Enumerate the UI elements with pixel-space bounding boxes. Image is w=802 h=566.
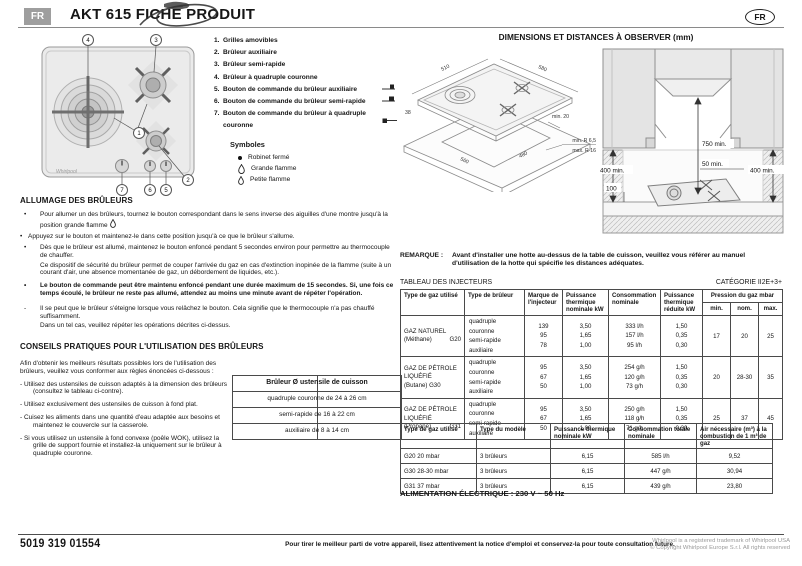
symbol-row: Petite flamme <box>238 175 406 186</box>
copyright-text: Whirlpool is a registered trademark of W… <box>620 538 790 552</box>
header-cell: Consommation nominale <box>609 290 661 316</box>
pressure-nom-cell: 20 <box>731 316 759 357</box>
svg-text:580: 580 <box>537 64 547 73</box>
cutout-dimensions-diagram: 510 580 560 480 38 min. 20 min. R 6,5 ma… <box>402 50 597 192</box>
hood-clearance-diagram: 750 min. 50 min. 400 min. 400 min. 100 <box>598 46 788 236</box>
header-cell: Puissance thermique nominale kW <box>551 424 625 449</box>
data-cell: 23,80 <box>697 479 773 494</box>
paragraph: Dans un tel cas, veuillez répéter les op… <box>40 322 398 330</box>
item-number: 3. <box>214 59 223 71</box>
closed-tap-icon <box>238 156 242 160</box>
list-item: 7.Bouton de commande du brûleur à quadru… <box>214 108 392 132</box>
symbols-title: Symboles <box>230 139 406 151</box>
pressure-max-cell: 35 <box>759 357 783 398</box>
item-number: 4. <box>214 72 223 84</box>
bullet-marker: • <box>20 282 40 297</box>
document-code: 5019 319 01554 <box>20 538 100 550</box>
item-label: Bouton de commande du brûleur semi-rapid… <box>223 96 366 108</box>
tip-item: - Si vous utilisez un ustensile à fond c… <box>20 435 230 458</box>
section-title-dimensions: DIMENSIONS ET DISTANCES À OBSERVER (mm) <box>400 32 792 42</box>
paragraph: Il se peut que le brûleur s'éteigne lors… <box>40 305 398 320</box>
bullet-item: • Dès que le brûleur est allumé, mainten… <box>20 244 398 279</box>
list-item: 2.Brûleur auxiliaire <box>214 47 406 59</box>
power-cell: 3,501,651,00 <box>563 316 609 357</box>
knob-position-icon <box>382 96 397 105</box>
knob-position-icon <box>382 84 397 93</box>
bullet-item: • Appuyez sur le bouton et maintenez-le … <box>20 233 398 241</box>
item-number: 6. <box>214 96 223 108</box>
copyright-line: Whirlpool is a registered trademark of W… <box>620 538 790 545</box>
cabinets-and-hood <box>603 49 783 148</box>
dash-marker: - <box>20 305 40 332</box>
table-row: G30 28-30 mbar 3 brûleurs 6,15 447 g/h 3… <box>401 464 773 479</box>
tips-section: Afin d'obtenir les meilleurs résultats p… <box>20 360 398 458</box>
header-cell: min. <box>703 303 731 316</box>
gas-type-cell: GAZ DE PÉTROLE LIQUÉFIÉ (Butane) G30 <box>401 357 465 398</box>
tip-item: - Utilisez exclusivement des ustensiles … <box>20 401 230 409</box>
reduced-power-cell: 1,500,350,30 <box>661 316 703 357</box>
reduced-power-cell: 1,500,350,30 <box>661 357 703 398</box>
svg-text:400 min.: 400 min. <box>750 168 775 175</box>
item-number: 7. <box>214 108 223 132</box>
data-cell: 585 l/h <box>625 449 697 464</box>
symbol-row: Robinet fermé <box>238 153 406 164</box>
burner-cell: quadruple couronnesemi-rapideauxiliaire <box>465 357 525 398</box>
pan-size-table: Brûleur Ø ustensile de cuisson quadruple… <box>232 375 402 440</box>
svg-text:100: 100 <box>606 186 617 193</box>
list-item: 5.Bouton de commande du brûleur auxiliai… <box>214 84 406 96</box>
left-text-column: ALLUMAGE DES BRÛLEURS • Pour allumer un … <box>20 196 398 463</box>
handwritten-scribble <box>128 0 238 34</box>
table-row: GAZ DE PÉTROLE LIQUÉFIÉ (Butane) G30 qua… <box>401 357 783 398</box>
data-cell: 439 g/h <box>625 479 697 494</box>
header-rule <box>18 27 784 28</box>
language-badge: FR <box>24 8 51 25</box>
list-item: 3.Brûleur semi-rapide <box>214 59 406 71</box>
bullet-item: • Pour allumer un des brûleurs, tournez … <box>20 211 398 229</box>
pressure-min-cell: 20 <box>703 357 731 398</box>
table-row: auxiliaire de 8 à 14 cm <box>233 424 401 439</box>
header-cell: Marque de l'injecteur <box>525 290 563 316</box>
bullet-text: Il se peut que le brûleur s'éteigne lors… <box>40 305 398 332</box>
svg-text:max. R 16: max. R 16 <box>572 148 596 154</box>
item-label: Bouton de commande du brûleur auxiliaire <box>223 84 357 96</box>
consumption-cell: 254 g/h120 g/h73 g/h <box>609 357 661 398</box>
data-cell: 3 brûleurs <box>477 449 551 464</box>
paragraph: Dès que le brûleur est allumé, maintenez… <box>40 244 398 259</box>
bullet-text: Pour allumer un des brûleurs, tournez le… <box>40 211 398 229</box>
header-cell: Puissance thermique réduite kW <box>661 290 703 316</box>
large-flame-icon <box>238 164 245 174</box>
header-cell: Type du modèle <box>477 424 551 449</box>
remark-label: REMARQUE : <box>400 252 452 268</box>
svg-text:50 min.: 50 min. <box>702 161 723 168</box>
header-cell: Air nécessaire (m³) à la combustion de 1… <box>697 424 773 449</box>
footer-rule <box>18 534 784 535</box>
data-cell: G20 20 mbar <box>401 449 477 464</box>
small-flame-icon <box>238 176 244 185</box>
item-number: 1. <box>214 35 223 47</box>
header-cell: Type de brûleur <box>465 290 525 316</box>
remark-text: Avant d'installer une hotte au-dessus de… <box>452 252 784 268</box>
whirlpool-logo: Whirlpool <box>56 169 78 175</box>
table-row: quadruple couronne de 24 à 26 cm <box>233 392 401 408</box>
tips-text: Afin d'obtenir les meilleurs résultats p… <box>20 360 230 458</box>
consumption-cell: 333 l/h157 l/h95 l/h <box>609 316 661 357</box>
copyright-line: © Copyright Whirlpool Europe S.r.l. All … <box>620 545 790 552</box>
item-label: Grilles amovibles <box>223 35 278 47</box>
item-label: Brûleur à quadruple couronne <box>223 72 318 84</box>
bullet-item: • Le bouton de commande peut être mainte… <box>20 282 398 297</box>
power-supply-line: ALIMENTATION ÉLECTRIQUE : 230 V ~ 50 Hz <box>400 489 564 498</box>
data-cell: 30,94 <box>697 464 773 479</box>
injector-cell: 1399578 <box>525 316 563 357</box>
paragraph: Ce dispositif de sécurité du brûleur per… <box>40 262 398 277</box>
pressure-nom-cell: 28-30 <box>731 357 759 398</box>
table-header: Brûleur Ø ustensile de cuisson <box>233 376 401 392</box>
header-cell: Pression du gaz mbar <box>703 290 783 303</box>
tip-item: - Utilisez des ustensiles de cuisson ada… <box>20 381 230 397</box>
table-row: G20 20 mbar 3 brûleurs 6,15 585 l/h 9,52 <box>401 449 773 464</box>
svg-text:400 min.: 400 min. <box>600 168 625 175</box>
large-flame-icon <box>110 219 116 228</box>
table-row: GAZ NATUREL (Méthane)G20 quadruple couro… <box>401 316 783 357</box>
bullet-text: Dès que le brûleur est allumé, maintenez… <box>40 244 398 279</box>
right-column: DIMENSIONS ET DISTANCES À OBSERVER (mm) <box>400 30 792 535</box>
gas-category: CATÉGORIE II2E+3+ <box>716 279 782 286</box>
injector-table: Type de gaz utilisé Type de brûleur Marq… <box>400 289 783 440</box>
bullet-marker: • <box>20 233 28 241</box>
bullet-text: Appuyez sur le bouton et maintenez-le da… <box>28 233 398 241</box>
parts-list: 1.Grilles amovibles 2.Brûleur auxiliaire… <box>214 35 406 186</box>
data-cell: 6,15 <box>551 464 625 479</box>
symbol-row: Grande flamme <box>238 164 406 175</box>
paragraph: Afin d'obtenir les meilleurs résultats p… <box>20 360 230 376</box>
list-item: 6.Bouton de commande du brûleur semi-rap… <box>214 96 406 108</box>
hob-top-view-diagram: Whirlpool 4 3 1 2 7 6 5 <box>26 33 211 198</box>
bullet-text: Le bouton de commande peut être maintenu… <box>40 282 398 297</box>
item-number: 2. <box>214 47 223 59</box>
header-cell: max. <box>759 303 783 316</box>
bullet-item: - Il se peut que le brûleur s'éteigne lo… <box>20 305 398 332</box>
remark-note: REMARQUE : Avant d'installer une hotte a… <box>400 252 784 268</box>
knob-position-icon <box>382 116 397 125</box>
burner-cell: quadruple couronnesemi-rapideauxiliaire <box>465 316 525 357</box>
pressure-max-cell: 25 <box>759 316 783 357</box>
header-cell: Type de gaz utilisé <box>401 424 477 449</box>
injector-table-title: TABLEAU DES INJECTEURS <box>400 279 492 286</box>
svg-text:750 min.: 750 min. <box>702 141 727 148</box>
item-label: Brûleur semi-rapide <box>223 59 285 71</box>
header-row: Type de gaz utilisé Type de brûleur Marq… <box>401 290 783 303</box>
section-title-tips: CONSEILS PRATIQUES POUR L'UTILISATION DE… <box>20 342 398 351</box>
header-cell: nom. <box>731 303 759 316</box>
tip-item: - Cuisez les aliments dans une quantité … <box>20 414 230 430</box>
gas-type-cell: GAZ NATUREL (Méthane)G20 <box>401 316 465 357</box>
header-cell: Puissance thermique nominale kW <box>563 290 609 316</box>
section-title-ignition: ALLUMAGE DES BRÛLEURS <box>20 196 398 205</box>
symbol-label: Petite flamme <box>250 174 290 186</box>
item-number: 5. <box>214 84 223 96</box>
list-item: 4.Brûleur à quadruple couronne <box>214 72 406 84</box>
item-label: Bouton de commande du brûleur à quadrupl… <box>223 108 392 132</box>
header-cell: Consommation totale nominale <box>625 424 697 449</box>
bullet-marker: • <box>20 211 40 229</box>
model-table: Type de gaz utilisé Type du modèle Puiss… <box>400 423 773 494</box>
power-cell: 3,501,651,00 <box>563 357 609 398</box>
header-cell: Type de gaz utilisé <box>401 290 465 316</box>
bullet-marker: • <box>20 244 40 279</box>
table-row: semi-rapide de 16 à 22 cm <box>233 408 401 424</box>
data-cell: 6,15 <box>551 449 625 464</box>
language-stamp: FR <box>745 9 775 25</box>
data-cell: 447 g/h <box>625 464 697 479</box>
pressure-min-cell: 17 <box>703 316 731 357</box>
product-fiche-page: FR AKT 615 FICHE PRODUIT FR <box>0 0 802 566</box>
svg-text:min. R 6,5: min. R 6,5 <box>572 138 596 144</box>
data-cell: 3 brûleurs <box>477 464 551 479</box>
injector-table-caption: TABLEAU DES INJECTEURS CATÉGORIE II2E+3+ <box>400 279 782 286</box>
item-label: Brûleur auxiliaire <box>223 47 277 59</box>
svg-text:min. 20: min. 20 <box>552 114 569 120</box>
header-row: Type de gaz utilisé Type du modèle Puiss… <box>401 424 773 449</box>
data-cell: G30 28-30 mbar <box>401 464 477 479</box>
data-cell: 9,52 <box>697 449 773 464</box>
svg-text:38: 38 <box>405 110 411 116</box>
injector-cell: 956750 <box>525 357 563 398</box>
svg-text:510: 510 <box>440 64 450 73</box>
list-item: 1.Grilles amovibles <box>214 35 406 47</box>
